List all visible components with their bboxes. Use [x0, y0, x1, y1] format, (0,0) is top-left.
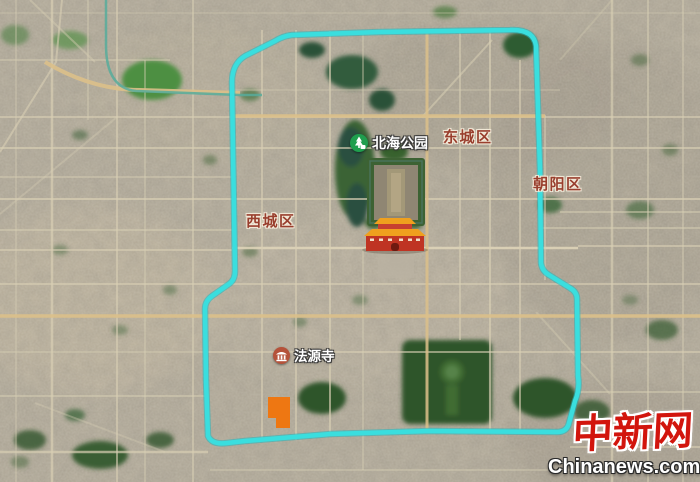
chinanews-url-text: Chinanews.com — [548, 456, 698, 479]
satellite-map[interactable]: 东城区 西城区 朝阳区 北海公园 法源寺 中新网 Chinanews.com — [0, 0, 700, 482]
poi-label-fayuan: 法源寺 — [294, 345, 335, 365]
poi-beihai-park[interactable]: 北海公园 — [350, 133, 428, 153]
district-label-chaoyang: 朝阳区 — [533, 173, 583, 194]
chinanews-logo-text: 中新网 — [564, 398, 700, 461]
poi-fayuan-temple[interactable]: 法源寺 — [273, 345, 335, 365]
district-label-xicheng: 西城区 — [246, 210, 296, 231]
park-icon — [350, 134, 368, 152]
district-label-dongcheng: 东城区 — [443, 126, 493, 147]
temple-icon — [273, 347, 290, 364]
poi-label-beihai: 北海公园 — [372, 133, 428, 153]
